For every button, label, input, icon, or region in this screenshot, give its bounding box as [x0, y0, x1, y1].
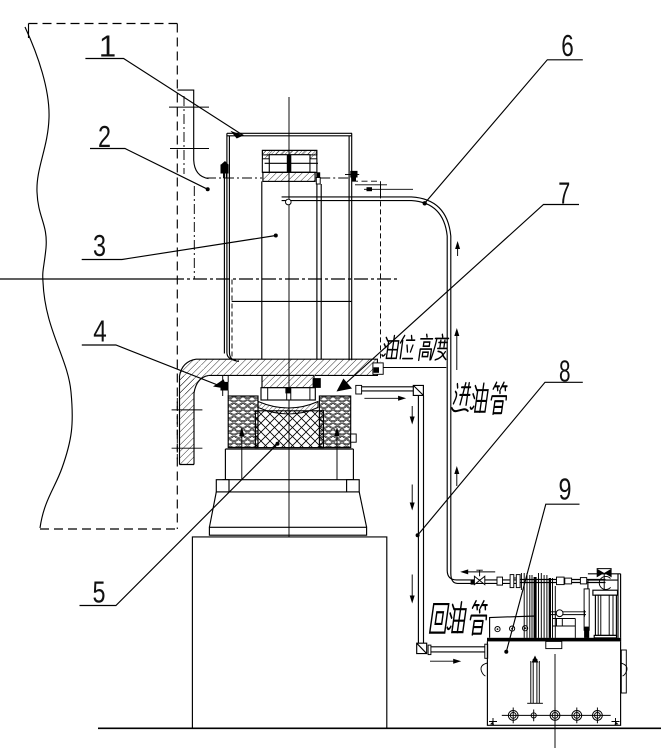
svg-text:8: 8	[559, 354, 571, 389]
svg-text:7: 7	[558, 176, 570, 211]
svg-text:6: 6	[561, 28, 574, 63]
svg-text:3: 3	[93, 228, 106, 263]
svg-text:4: 4	[93, 314, 107, 349]
svg-text:9: 9	[559, 472, 572, 507]
svg-text:5: 5	[93, 575, 106, 610]
